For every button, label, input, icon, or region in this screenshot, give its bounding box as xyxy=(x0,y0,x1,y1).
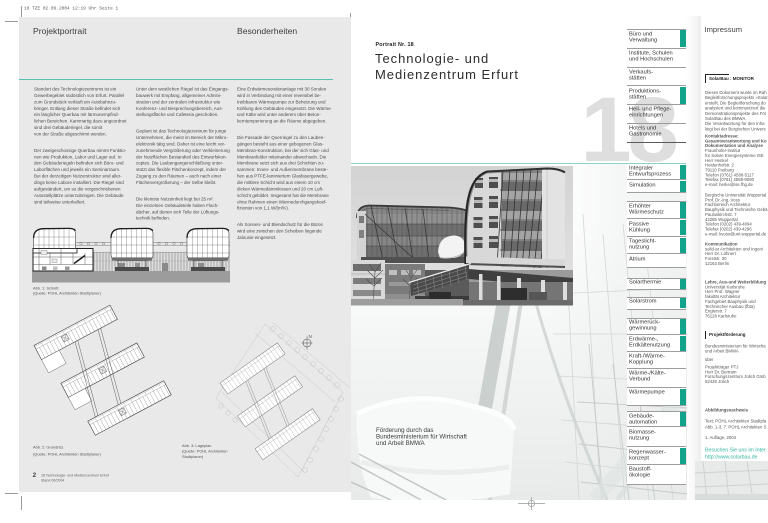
svg-text:N: N xyxy=(309,334,312,339)
